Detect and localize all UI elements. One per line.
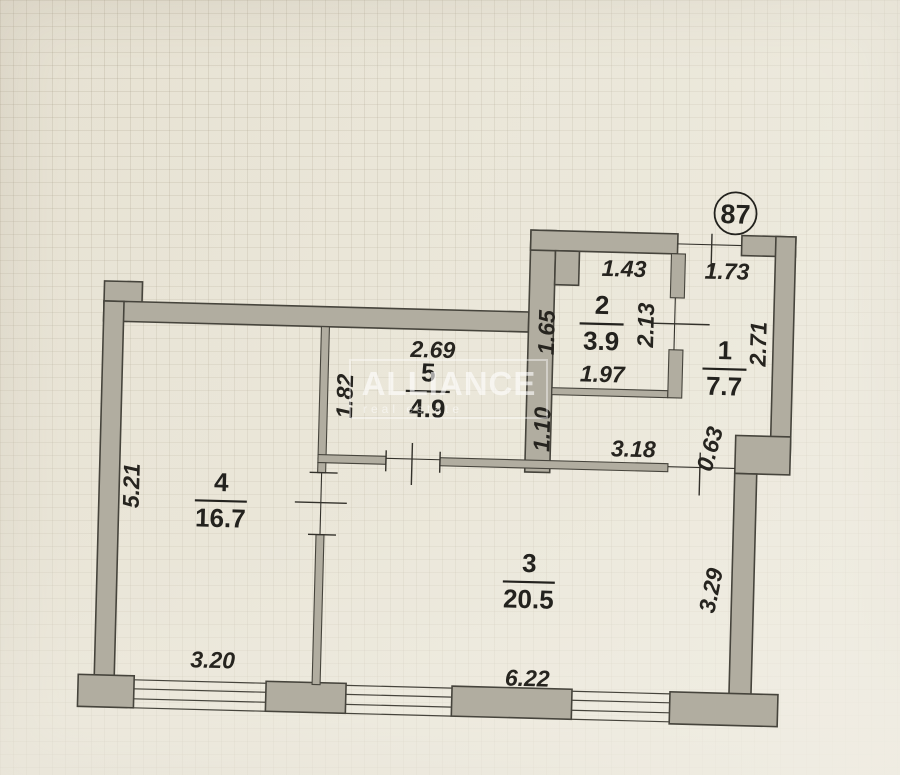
room-2-number: 2 [594, 290, 609, 320]
room-4-area: 16.7 [195, 502, 246, 533]
room-3-area: 20.5 [503, 583, 554, 614]
dim-hall-left: 1.10 [528, 406, 555, 452]
dim-room5-left: 1.82 [331, 373, 358, 419]
exterior-walls [77, 218, 796, 726]
dim-room4-left: 5.21 [118, 463, 145, 508]
dim-room3-right: 3.29 [694, 566, 728, 615]
floor-plan-photo: 87 1 7.7 2 3.9 3 20.5 4 16.7 5 4.9 [0, 0, 900, 775]
room-3-number: 3 [522, 548, 537, 578]
dim-room2-left: 1.65 [533, 309, 560, 356]
windows [133, 680, 670, 722]
room-2-area: 3.9 [583, 325, 620, 356]
dim-room4-window: 3.20 [190, 646, 236, 673]
dim-room1-right: 2.71 [745, 321, 772, 367]
dim-room1-top: 1.73 [704, 258, 750, 285]
room-1-number: 1 [717, 335, 732, 365]
floor-plan-drawing: 87 1 7.7 2 3.9 3 20.5 4 16.7 5 4.9 [0, 0, 900, 775]
apartment-number-badge: 87 [714, 192, 757, 235]
room-1-area: 7.7 [706, 371, 743, 402]
dim-room2-right: 2.13 [632, 302, 659, 349]
dim-hall-door: 0.63 [691, 424, 728, 474]
dim-room2-bottom: 1.97 [580, 360, 627, 387]
apartment-number: 87 [720, 199, 751, 230]
dim-room5-top: 2.69 [409, 336, 456, 363]
dim-room3-bottom: 6.22 [505, 665, 551, 692]
dim-room2-top: 1.43 [601, 255, 647, 282]
dim-hall-length: 3.18 [611, 435, 657, 462]
room-5-area: 4.9 [409, 393, 446, 424]
room-4-number: 4 [214, 467, 230, 497]
